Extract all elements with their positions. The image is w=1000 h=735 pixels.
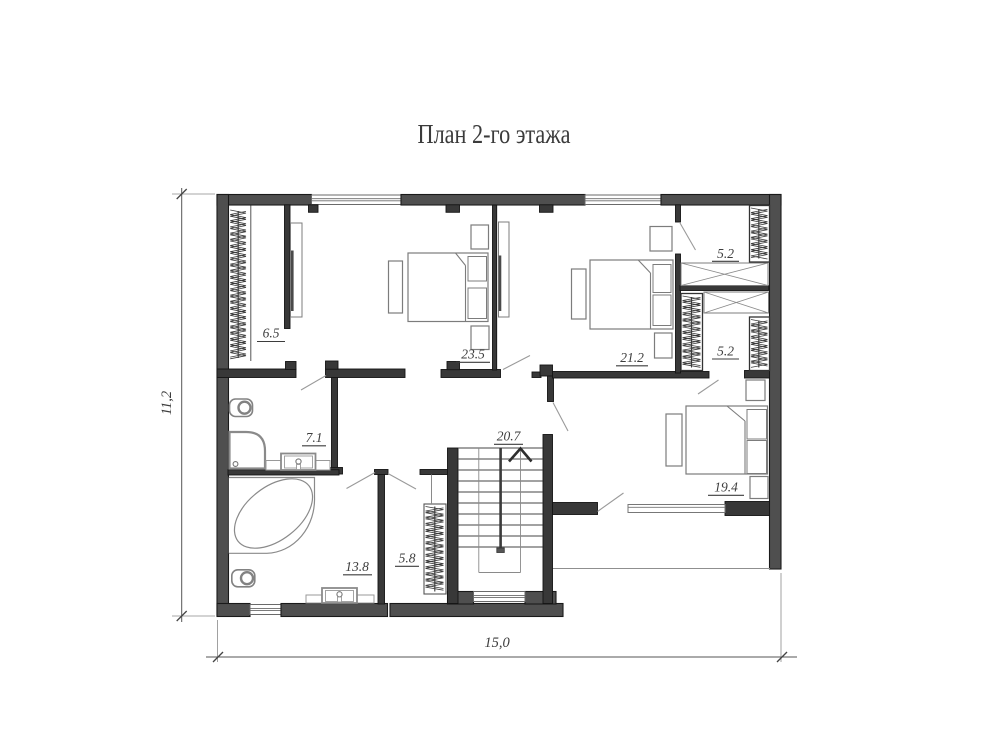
svg-text:5.2: 5.2: [717, 246, 734, 261]
svg-text:План 2-го этажа: План 2-го этажа: [418, 119, 571, 149]
svg-text:23.5: 23.5: [461, 347, 485, 362]
svg-text:20.7: 20.7: [497, 429, 522, 444]
svg-text:6.5: 6.5: [263, 326, 280, 341]
svg-text:13.8: 13.8: [345, 559, 369, 574]
svg-text:11,2: 11,2: [159, 391, 175, 415]
svg-text:19.4: 19.4: [714, 480, 738, 495]
svg-text:21.2: 21.2: [620, 350, 644, 365]
svg-text:5.8: 5.8: [399, 551, 416, 566]
svg-text:15,0: 15,0: [484, 635, 510, 651]
svg-text:7.1: 7.1: [306, 430, 323, 445]
svg-text:5.2: 5.2: [717, 344, 734, 359]
